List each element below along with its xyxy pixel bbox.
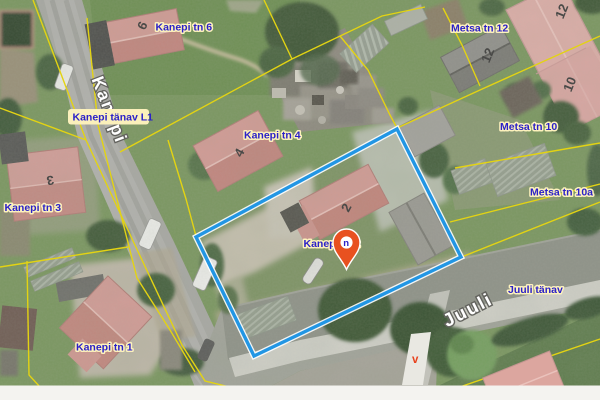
svg-text:Metsa tn 10: Metsa tn 10 (500, 121, 557, 133)
svg-text:Kanepi tn 6: Kanepi tn 6 (156, 22, 213, 34)
svg-text:Juuli tänav: Juuli tänav (508, 284, 563, 296)
svg-text:n: n (343, 238, 349, 249)
svg-text:v: v (412, 354, 419, 366)
svg-text:Metsa tn 12: Metsa tn 12 (451, 23, 508, 35)
svg-text:Kanepi tn 4: Kanepi tn 4 (244, 130, 301, 142)
svg-text:Kanepi tn 3: Kanepi tn 3 (5, 202, 62, 214)
svg-text:Metsa tn 10a: Metsa tn 10a (530, 187, 593, 199)
svg-text:Kanepi tänav L1: Kanepi tänav L1 (73, 112, 154, 124)
svg-text:Kanepi tn 1: Kanepi tn 1 (76, 342, 133, 354)
